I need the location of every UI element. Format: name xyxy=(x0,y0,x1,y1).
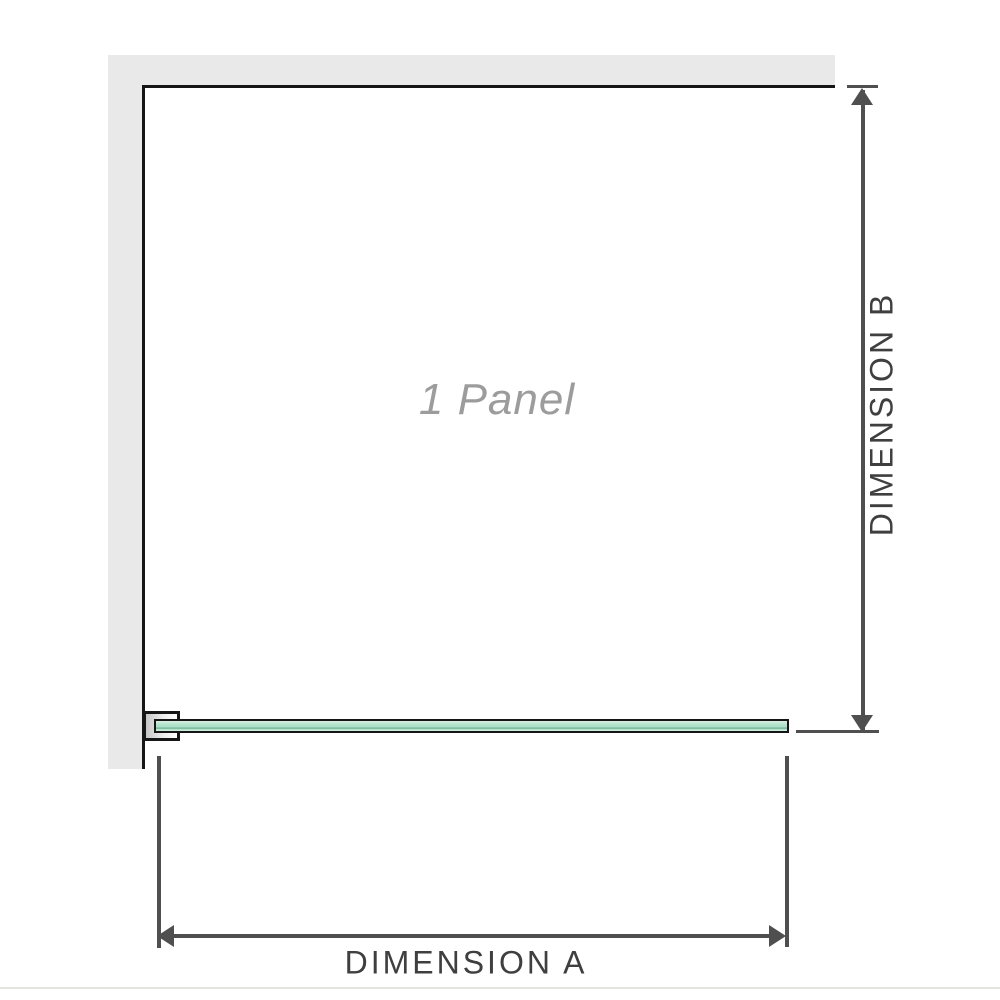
dimension-a-extension-right xyxy=(785,756,789,947)
wall-segment-top xyxy=(108,55,835,85)
dimension-a-extension-left xyxy=(157,756,161,948)
dimension-a-label: DIMENSION A xyxy=(345,945,588,982)
glass-panel xyxy=(154,719,789,733)
arrow-down-icon xyxy=(851,715,873,732)
wall-inner-edge-top xyxy=(142,85,835,88)
arrow-left-icon xyxy=(157,925,174,947)
arrow-up-icon xyxy=(851,88,873,105)
panel-dimension-diagram: 1 Panel DIMENSION B DIMENSION A xyxy=(0,0,1000,1000)
dimension-a-line xyxy=(168,934,774,938)
wall-segment-left xyxy=(108,55,142,769)
arrow-right-icon xyxy=(769,925,786,947)
image-bottom-divider xyxy=(0,987,1000,989)
wall-inner-edge-left xyxy=(142,85,145,769)
dimension-b-label: DIMENSION B xyxy=(864,292,901,537)
panel-count-label: 1 Panel xyxy=(419,375,575,425)
